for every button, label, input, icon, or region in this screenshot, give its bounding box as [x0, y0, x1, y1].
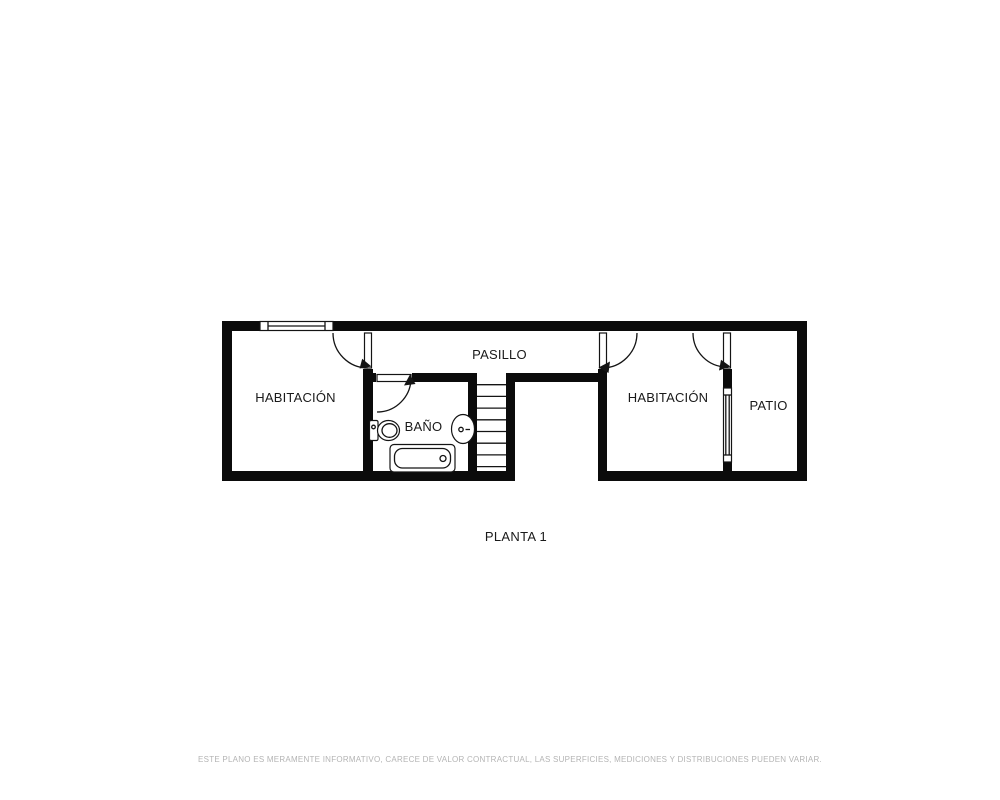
wall-segment: [797, 321, 807, 481]
door-icon: [599, 333, 638, 373]
bathtub-icon: [390, 445, 455, 473]
door-icon: [693, 333, 731, 371]
wall-segment: [723, 369, 732, 388]
stairs-icon: [477, 385, 506, 467]
room-label-bano: BAÑO: [405, 419, 443, 434]
floorplan-page: HABITACIÓN PASILLO BAÑO HABITACIÓN PATIO…: [0, 0, 1000, 800]
room-label-patio: PATIO: [749, 398, 787, 413]
room-label-habitacion-left: HABITACIÓN: [255, 390, 336, 405]
sink-icon: [452, 415, 475, 444]
wall-segment: [506, 373, 515, 481]
wall-segment: [598, 369, 607, 481]
wall-segment: [363, 373, 376, 382]
disclaimer-text: ESTE PLANO ES MERAMENTE INFORMATIVO, CAR…: [198, 755, 822, 764]
floor-label: PLANTA 1: [485, 529, 547, 544]
wall-segment: [723, 462, 732, 481]
window-icon: [724, 388, 732, 462]
wall-segment: [600, 471, 807, 481]
wall-segment: [515, 373, 607, 382]
wall-segment: [333, 321, 807, 331]
room-label-habitacion-right: HABITACIÓN: [628, 390, 709, 405]
door-icon: [333, 333, 372, 369]
room-label-pasillo: PASILLO: [472, 347, 527, 362]
door-icon: [377, 375, 416, 413]
wall-segment: [222, 321, 232, 481]
floor-plan-canvas: HABITACIÓN PASILLO BAÑO HABITACIÓN PATIO…: [0, 0, 1000, 800]
toilet-icon: [370, 421, 400, 441]
window-icon: [260, 322, 333, 331]
wall-segment: [412, 373, 477, 382]
